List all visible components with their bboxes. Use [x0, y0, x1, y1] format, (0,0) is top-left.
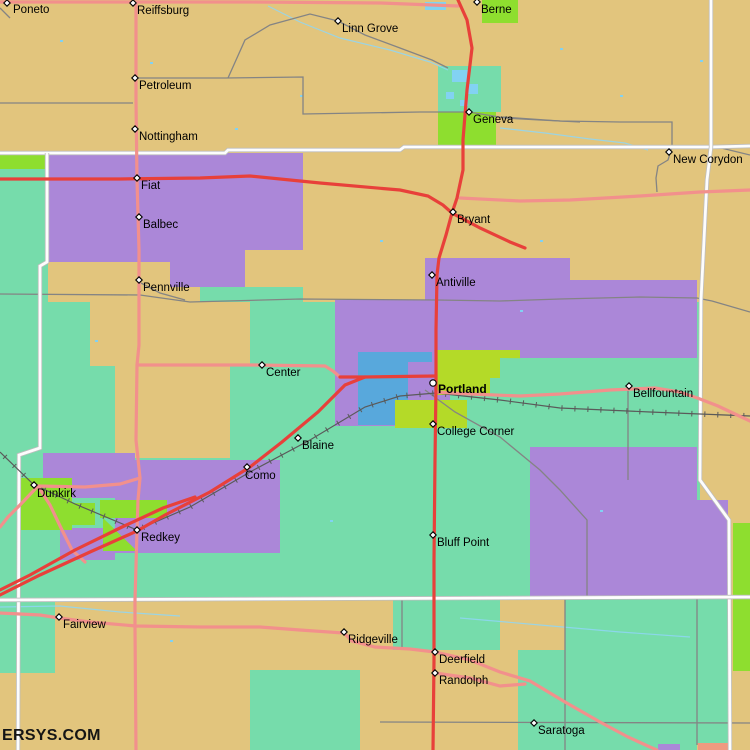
town-portland: Portland [430, 380, 487, 396]
town-label: Bryant [457, 214, 491, 226]
pennville-tan-region [90, 302, 250, 366]
town-marker [430, 380, 436, 386]
town-label: Redkey [141, 532, 180, 544]
town-label: Linn Grove [342, 23, 398, 35]
map-canvas[interactable]: PonetoReiffsburgLinn GroveBernePetroleum… [0, 0, 750, 750]
railroad-tick [497, 397, 498, 403]
town-label: Dunkirk [37, 488, 76, 500]
town-label: Randolph [439, 675, 488, 687]
town-label: Bluff Point [437, 537, 490, 549]
town-label: College Corner [437, 426, 515, 438]
southeast-purple-region [530, 447, 697, 598]
town-label: Reiffsburg [137, 5, 189, 17]
town-label: Fairview [63, 619, 107, 631]
west-green-region [0, 153, 48, 169]
bottom-right-salmon [698, 743, 730, 750]
town-label: Ridgeville [348, 634, 398, 646]
deerfield-teal [393, 598, 500, 650]
southeast-teal [565, 598, 697, 750]
town-label: Fiat [141, 180, 161, 192]
redkey-green-region [100, 500, 167, 518]
town-label: Berne [481, 4, 512, 16]
south-central-teal [250, 670, 360, 750]
town-label: Blaine [302, 440, 334, 452]
site-watermark: ERSYS.COM [2, 727, 101, 745]
dunkirk-green-2 [55, 503, 95, 525]
town-label: Geneva [473, 114, 514, 126]
town-label: Center [266, 367, 301, 379]
southwest-teal [0, 598, 55, 673]
town-label: Petroleum [139, 80, 191, 92]
north-portland-purple-band [335, 300, 697, 358]
town-label: Deerfield [439, 654, 485, 666]
geneva-lake-3 [446, 92, 454, 99]
town-label: Bellfountain [633, 388, 693, 400]
map-svg: PonetoReiffsburgLinn GroveBernePetroleum… [0, 0, 750, 750]
town-label: Pennville [143, 282, 190, 294]
town-label: Como [245, 470, 276, 482]
pennville-south-tan [115, 366, 230, 458]
town-label: Antiville [436, 277, 476, 289]
railroad-tick [484, 396, 485, 402]
town-label: Saratoga [538, 725, 585, 737]
town-label: Nottingham [139, 131, 198, 143]
town-label: Poneto [13, 4, 49, 16]
highway-portland-west [340, 376, 436, 377]
town-label: Portland [438, 382, 487, 396]
geneva-lake [452, 70, 468, 82]
town-label: New Corydon [673, 154, 743, 166]
bottom-right-purple [658, 744, 680, 750]
town-label: Balbec [143, 219, 178, 231]
stateline-teal-strip [697, 598, 728, 743]
